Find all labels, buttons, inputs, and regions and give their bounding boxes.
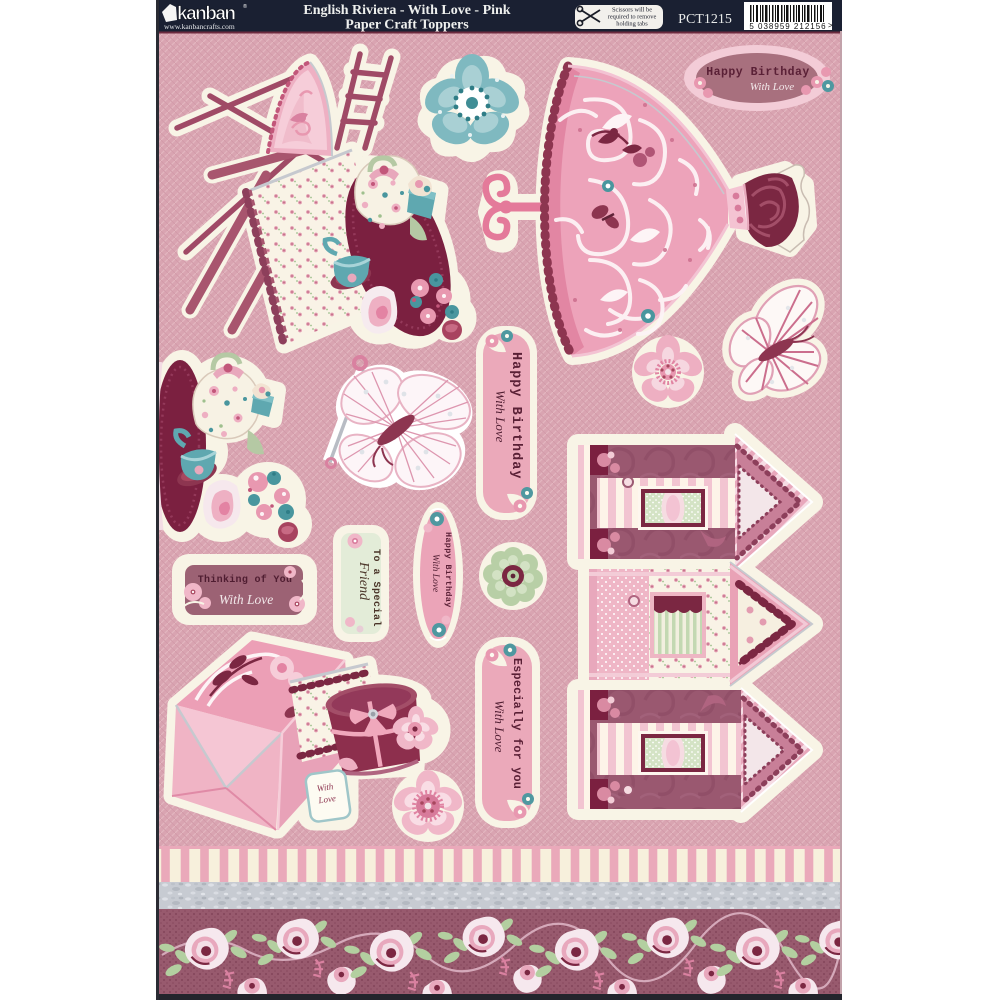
svg-text:English Riviera - With Love -: English Riviera - With Love - Pink [303, 3, 510, 18]
svg-text:Paper Craft Toppers: Paper Craft Toppers [345, 18, 469, 33]
svg-text:With Love: With Love [219, 592, 273, 607]
svg-text:holding tabs: holding tabs [616, 21, 648, 28]
svg-text:5 038959 212156: 5 038959 212156 [749, 22, 826, 31]
svg-text:PCT1215: PCT1215 [678, 12, 732, 27]
svg-text:With Love: With Love [750, 81, 794, 93]
svg-text:With Love: With Love [430, 554, 440, 592]
svg-text:Scissors will be: Scissors will be [612, 7, 652, 14]
svg-text:Happy Birthday: Happy Birthday [706, 66, 810, 79]
svg-text:Happy Birthday: Happy Birthday [443, 532, 453, 608]
svg-text:Friend: Friend [356, 561, 371, 601]
svg-text:>: > [828, 21, 833, 30]
svg-text:With Love: With Love [492, 700, 507, 753]
svg-text:Happy Birthday: Happy Birthday [508, 352, 523, 479]
svg-text:Thinking of You: Thinking of You [198, 574, 293, 586]
svg-text:Especially for you: Especially for you [510, 658, 524, 789]
svg-text:required to remove: required to remove [608, 14, 657, 21]
svg-text:With Love: With Love [493, 390, 508, 443]
svg-text:www.kanbancrafts.com: www.kanbancrafts.com [164, 22, 235, 31]
svg-text:®: ® [243, 3, 247, 10]
